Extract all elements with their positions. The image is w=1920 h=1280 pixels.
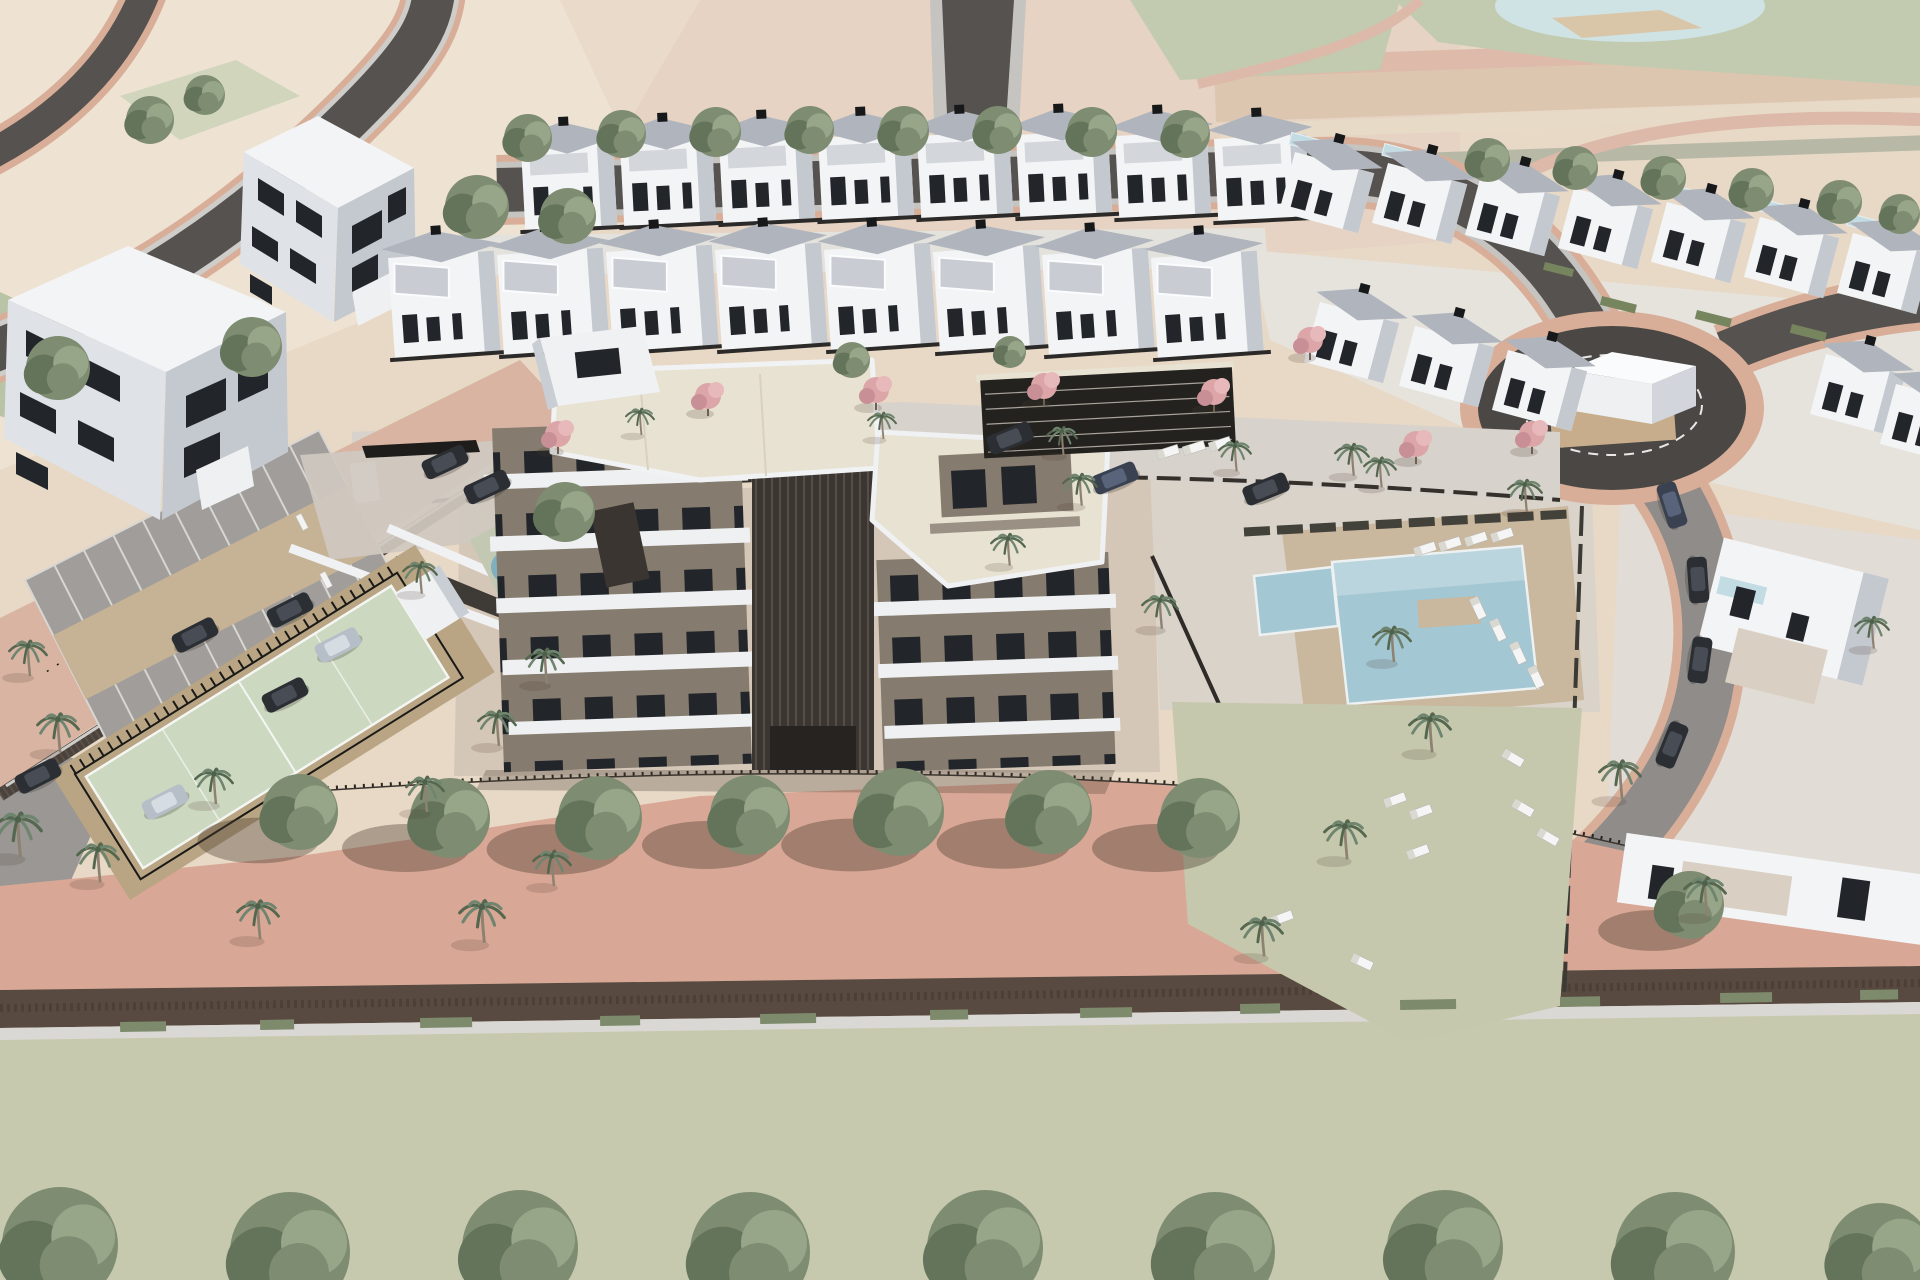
entrance xyxy=(770,726,856,770)
hedge xyxy=(760,1013,816,1024)
hedge xyxy=(1560,996,1600,1007)
aerial-render-stage xyxy=(0,0,1920,1280)
hedge xyxy=(600,1015,640,1026)
hedge xyxy=(420,1017,472,1028)
hedge xyxy=(1860,989,1898,1000)
hedge xyxy=(1720,992,1772,1003)
hedge xyxy=(930,1009,968,1020)
hedge xyxy=(1080,1007,1132,1018)
hedge xyxy=(1240,1003,1280,1014)
site-render xyxy=(0,0,1920,1280)
hedge xyxy=(1400,999,1456,1010)
hedge xyxy=(260,1019,294,1030)
hedge xyxy=(120,1021,166,1032)
